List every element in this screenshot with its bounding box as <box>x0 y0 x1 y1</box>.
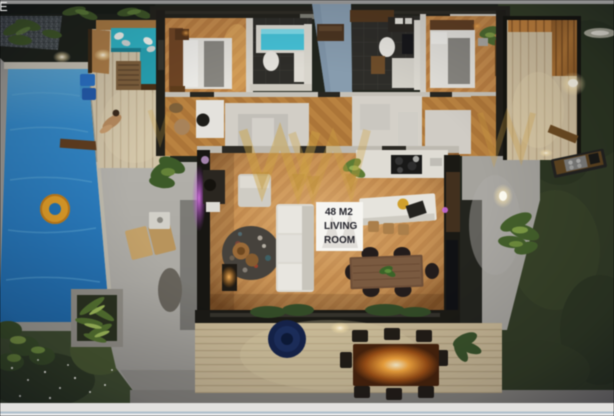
svg-text:E: E <box>0 0 8 14</box>
